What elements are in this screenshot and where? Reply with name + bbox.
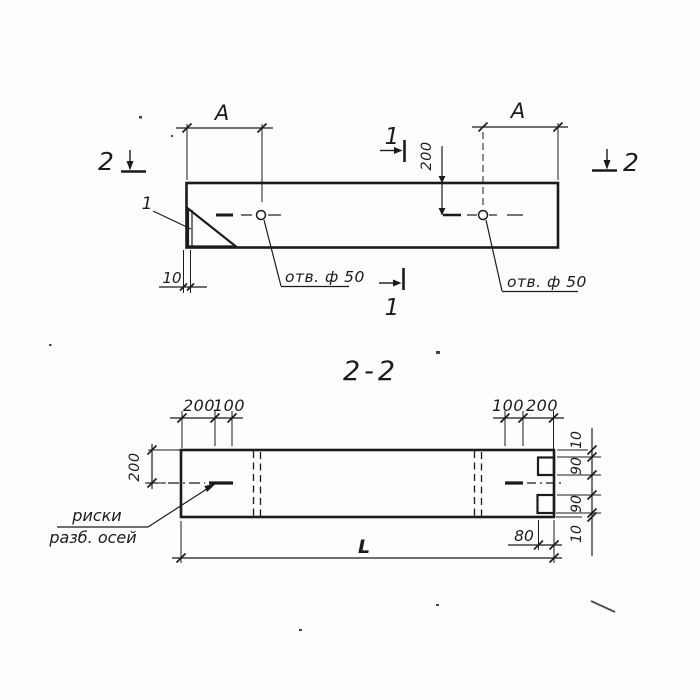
- dim-90-top-label: 90: [569, 457, 585, 475]
- recess-top: [538, 458, 554, 476]
- dim-10-top-label: 10: [569, 431, 585, 449]
- dim-100-label: 100: [492, 396, 524, 415]
- note-leader-arrow: [205, 484, 217, 493]
- hole-circle: [479, 211, 488, 220]
- plan-view: 1 A: [98, 99, 639, 321]
- detail-mark-label: 1: [142, 194, 153, 214]
- recess-bottom: [538, 495, 555, 513]
- section-mark-2-left: 2: [98, 147, 146, 176]
- section-view: 200 100 100 200 200: [48, 396, 601, 563]
- section-mark-1-top: 1: [380, 124, 405, 162]
- dim-height-label: 200: [127, 452, 143, 481]
- section-mark-label: 1: [385, 124, 400, 150]
- dim-10-label: 10: [162, 269, 181, 287]
- dim-80-label: 80: [514, 527, 534, 545]
- speck: [49, 344, 52, 346]
- axis-note-line2: разб. осей: [48, 528, 136, 547]
- section-mark-arrow: [393, 280, 402, 287]
- dim-200-plan: 200: [419, 141, 445, 215]
- dim-a-left: A: [176, 101, 273, 202]
- dim-200-label: 200: [526, 396, 558, 415]
- technical-drawing: 1 A: [0, 0, 700, 700]
- hole-label-right: отв. ф 50: [486, 220, 587, 292]
- dim-length-label: L: [358, 536, 370, 558]
- dim-length: L: [172, 521, 562, 563]
- hole-label-text: отв. ф 50: [507, 273, 587, 291]
- hidden-hole-right: [475, 451, 482, 516]
- section-mark-arrow: [604, 160, 611, 170]
- hole-label-left: отв. ф 50: [264, 220, 365, 287]
- section-beam-outline: [181, 450, 554, 517]
- dim-a-right-label: A: [509, 99, 525, 123]
- section-mark-label: 2: [98, 147, 114, 176]
- hole-left: [216, 211, 281, 220]
- dim-a-left-label: A: [213, 101, 229, 125]
- dims-top-right: 100 200: [492, 396, 564, 449]
- hole-right: [443, 211, 523, 220]
- dim-200-label: 200: [419, 141, 435, 170]
- section-title: 2-2: [343, 356, 399, 387]
- speck: [299, 629, 302, 631]
- dim-10-plate: 10: [159, 250, 207, 293]
- speck: [139, 116, 142, 119]
- section-mark-label: 1: [385, 295, 400, 321]
- leader-line: [486, 220, 502, 291]
- scratch-mark: [591, 601, 615, 612]
- dim-90-bottom-label: 90: [569, 495, 585, 513]
- leader-line: [264, 220, 281, 286]
- dim-10-bottom-label: 10: [569, 525, 585, 543]
- section-mark-1-bottom: 1: [379, 268, 404, 321]
- dims-right-chain: 10 90 90 10: [556, 428, 601, 556]
- drawing-sheet: 1 A: [0, 0, 700, 700]
- scan-artifacts: [49, 116, 615, 631]
- speck: [171, 135, 173, 137]
- speck: [436, 351, 440, 354]
- dim-100-label: 100: [213, 396, 245, 415]
- dims-top-left: 200 100: [170, 396, 245, 448]
- hole-label-text: отв. ф 50: [285, 268, 365, 286]
- section-mark-arrow: [127, 161, 134, 171]
- dim-height-left: 200: [127, 444, 181, 489]
- dim-80: 80: [508, 520, 562, 563]
- dim-a-right: A: [472, 99, 568, 209]
- dim-200-label: 200: [183, 396, 215, 415]
- axis-note-line1: риски: [71, 506, 121, 525]
- section-mark-2-right: 2: [592, 148, 639, 177]
- speck: [436, 604, 439, 606]
- section-mark-label: 2: [623, 148, 639, 177]
- hidden-hole-left: [254, 451, 261, 516]
- axis-note: риски разб. осей: [48, 484, 216, 548]
- hole-circle: [257, 211, 266, 220]
